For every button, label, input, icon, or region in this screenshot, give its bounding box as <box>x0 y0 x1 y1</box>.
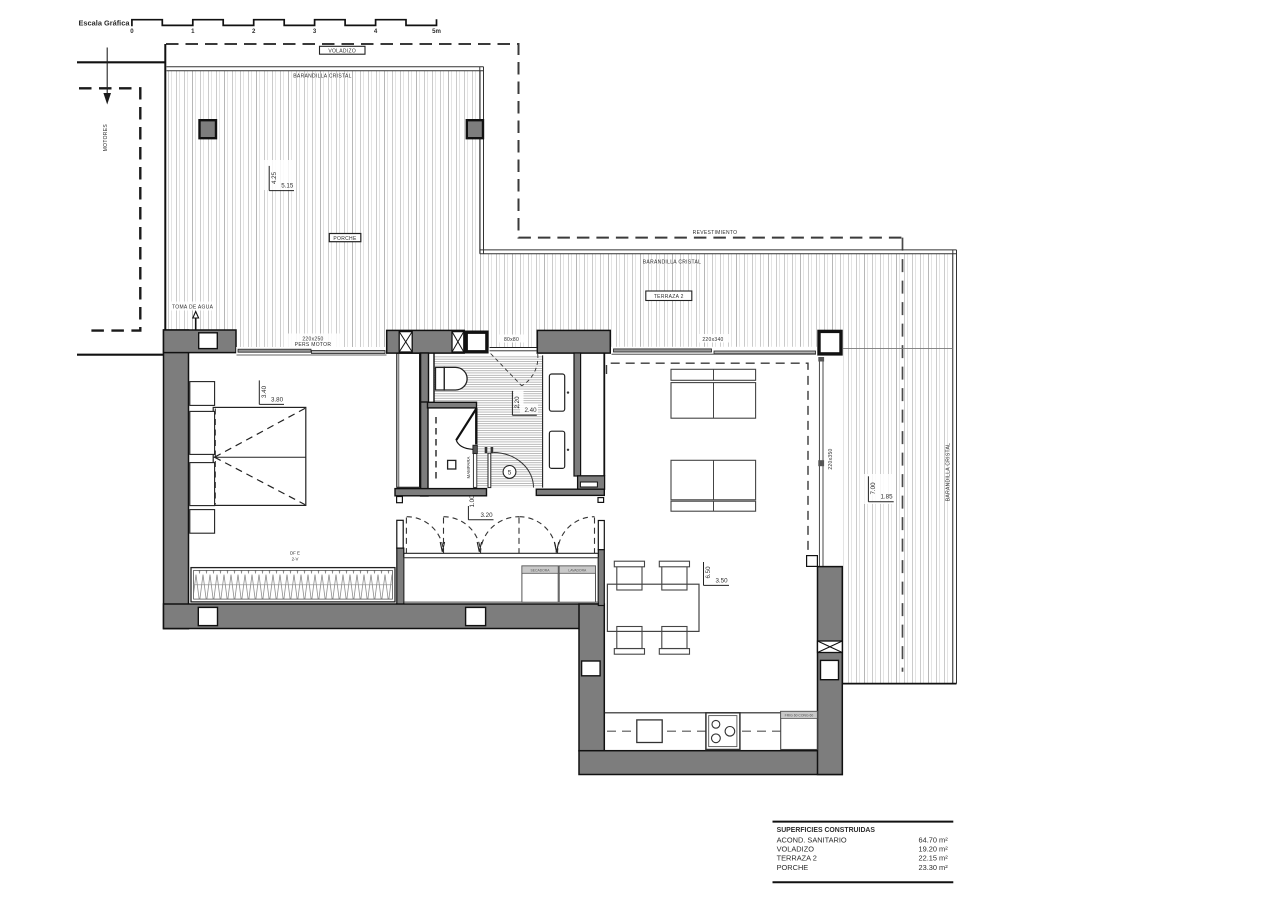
svg-text:PORCHE: PORCHE <box>333 236 357 242</box>
svg-text:1.85: 1.85 <box>880 494 893 501</box>
svg-text:19.20 m²: 19.20 m² <box>919 845 949 854</box>
svg-text:1.00: 1.00 <box>469 495 476 508</box>
svg-text:REVESTIMIENTO: REVESTIMIENTO <box>693 230 738 236</box>
svg-text:BARANDILLA CRISTAL: BARANDILLA CRISTAL <box>293 74 351 80</box>
svg-text:ACOND. SANITARIO: ACOND. SANITARIO <box>777 835 847 844</box>
svg-text:3.40: 3.40 <box>261 385 268 398</box>
svg-text:3.20: 3.20 <box>480 512 493 519</box>
svg-text:PERS MOTOR: PERS MOTOR <box>295 342 332 348</box>
svg-text:SUPERFICIES CONSTRUIDAS: SUPERFICIES CONSTRUIDAS <box>777 827 876 834</box>
svg-text:PORCHE: PORCHE <box>777 863 809 872</box>
svg-text:DF E: DF E <box>290 551 300 556</box>
svg-text:TOMA DE AGUA: TOMA DE AGUA <box>172 305 214 311</box>
svg-text:TERRAZA 2: TERRAZA 2 <box>777 854 817 863</box>
svg-text:BARANDILLA CRISTAL: BARANDILLA CRISTAL <box>643 260 701 266</box>
svg-text:64.70 m²: 64.70 m² <box>919 835 949 844</box>
svg-text:3.50: 3.50 <box>715 578 728 585</box>
svg-text:23.30 m²: 23.30 m² <box>919 863 949 872</box>
svg-text:2: 2 <box>252 28 256 35</box>
svg-text:VOLADIZO: VOLADIZO <box>328 48 356 54</box>
svg-text:TERRAZA 2: TERRAZA 2 <box>654 294 684 300</box>
svg-text:5.15: 5.15 <box>281 182 294 189</box>
svg-text:0: 0 <box>130 28 134 35</box>
svg-text:MAMPARA: MAMPARA <box>466 456 471 478</box>
svg-text:4.25: 4.25 <box>271 171 278 184</box>
svg-text:3.80: 3.80 <box>271 396 284 403</box>
svg-text:2.40: 2.40 <box>524 407 537 414</box>
svg-text:5: 5 <box>508 469 512 476</box>
svg-text:2.20: 2.20 <box>514 396 521 409</box>
svg-text:2-V: 2-V <box>292 557 299 562</box>
svg-text:FRIG 60 CONG 60: FRIG 60 CONG 60 <box>785 714 814 718</box>
svg-text:6.50: 6.50 <box>705 566 712 579</box>
svg-text:Escala Gráfica: Escala Gráfica <box>79 18 131 27</box>
svg-text:80x80: 80x80 <box>504 337 519 343</box>
svg-text:7.00: 7.00 <box>870 482 877 495</box>
svg-text:SECADORA: SECADORA <box>530 568 550 572</box>
svg-text:22.15 m²: 22.15 m² <box>919 854 949 863</box>
svg-text:5m: 5m <box>432 28 441 35</box>
svg-text:220x340: 220x340 <box>702 337 723 343</box>
svg-text:LAVADORA: LAVADORA <box>568 568 587 572</box>
svg-text:220x350: 220x350 <box>828 448 834 469</box>
svg-text:BARANDILLA CRISTAL: BARANDILLA CRISTAL <box>946 443 952 501</box>
svg-text:VOLADIZO: VOLADIZO <box>777 845 815 854</box>
svg-text:MOTORES: MOTORES <box>103 124 109 152</box>
